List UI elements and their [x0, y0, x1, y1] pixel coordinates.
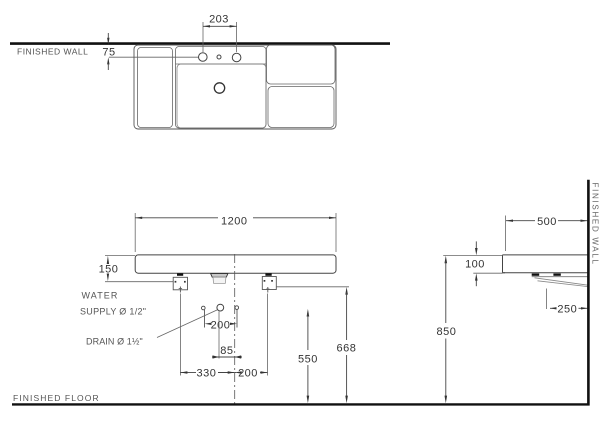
svg-text:FINISHED WALL: FINISHED WALL — [590, 183, 599, 266]
svg-text:203: 203 — [209, 13, 229, 25]
svg-text:200: 200 — [238, 368, 258, 380]
svg-text:330: 330 — [196, 368, 216, 380]
svg-text:850: 850 — [436, 326, 456, 338]
svg-text:150: 150 — [99, 264, 119, 276]
svg-text:200: 200 — [211, 320, 231, 332]
svg-text:500: 500 — [537, 216, 557, 228]
svg-text:250: 250 — [557, 304, 577, 316]
svg-text:668: 668 — [336, 343, 356, 355]
svg-text:1200: 1200 — [221, 216, 247, 228]
svg-text:FINISHED FLOOR: FINISHED FLOOR — [13, 393, 100, 403]
svg-text:SUPPLY Ø 1/2": SUPPLY Ø 1/2" — [80, 307, 146, 317]
svg-text:550: 550 — [298, 353, 318, 365]
svg-text:DRAIN Ø 1½": DRAIN Ø 1½" — [86, 337, 143, 347]
svg-text:100: 100 — [465, 259, 485, 271]
svg-text:75: 75 — [102, 47, 115, 59]
svg-text:85: 85 — [220, 345, 233, 357]
svg-text:WATER: WATER — [82, 291, 119, 301]
svg-text:FINISHED WALL: FINISHED WALL — [17, 47, 88, 57]
